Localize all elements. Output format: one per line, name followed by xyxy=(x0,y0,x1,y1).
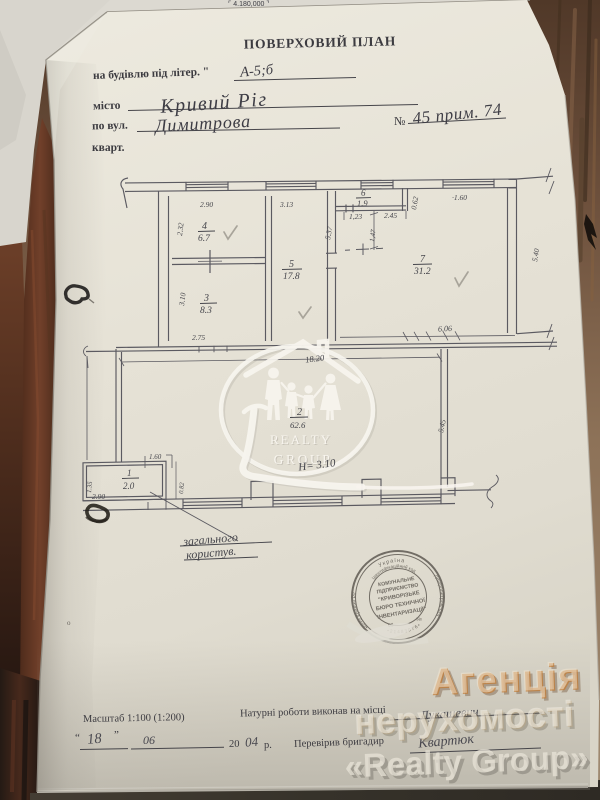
svg-text:6.06: 6.06 xyxy=(438,324,452,334)
svg-text:0.82: 0.82 xyxy=(178,481,186,494)
svg-text:1.9: 1.9 xyxy=(357,198,368,208)
svg-text:04: 04 xyxy=(245,734,260,750)
svg-text:3.10: 3.10 xyxy=(177,292,188,307)
svg-text:31.2: 31.2 xyxy=(413,267,431,277)
svg-text:”: ” xyxy=(114,729,119,741)
svg-text:5: 5 xyxy=(289,259,294,270)
svg-text:3: 3 xyxy=(203,293,209,304)
svg-text:2.45: 2.45 xyxy=(384,211,397,220)
svg-text:1.35: 1.35 xyxy=(86,480,94,493)
svg-text:1.60: 1.60 xyxy=(149,453,162,461)
svg-text:06: 06 xyxy=(143,733,155,747)
svg-text:кварт.: кварт. xyxy=(92,142,125,154)
svg-text:o: o xyxy=(67,619,71,627)
svg-text:нерухомості: нерухомості xyxy=(353,693,574,742)
svg-text:REALTY: REALTY xyxy=(270,432,332,447)
svg-text:4: 4 xyxy=(202,221,207,232)
svg-text:місто: місто xyxy=(93,100,121,113)
svg-text:2.0: 2.0 xyxy=(123,481,135,491)
svg-text:2.75: 2.75 xyxy=(192,333,205,342)
svg-text:8.3: 8.3 xyxy=(200,306,212,316)
svg-text:18: 18 xyxy=(86,731,103,748)
svg-text:3.13: 3.13 xyxy=(279,200,293,209)
svg-text:ПОВЕРХОВИЙ ПЛАН: ПОВЕРХОВИЙ ПЛАН xyxy=(244,33,397,51)
svg-text:17.8: 17.8 xyxy=(283,272,300,282)
svg-text:2.32: 2.32 xyxy=(175,222,186,236)
svg-text:2: 2 xyxy=(297,407,302,418)
svg-text:по вул.: по вул. xyxy=(92,120,128,133)
svg-text:1,23: 1,23 xyxy=(349,212,362,221)
svg-text:Масштаб 1:100 (1:200): Масштаб 1:100 (1:200) xyxy=(83,712,185,725)
svg-text:20: 20 xyxy=(229,739,240,750)
svg-text:“: “ xyxy=(75,732,80,744)
svg-text:6: 6 xyxy=(361,188,366,198)
svg-text:А-5;б: А-5;б xyxy=(238,62,274,81)
svg-text:р.: р. xyxy=(264,740,272,751)
svg-text:№: № xyxy=(394,114,405,128)
svg-text:1: 1 xyxy=(127,468,132,478)
svg-text:·1.60: ·1.60 xyxy=(452,193,467,202)
svg-text:62.6: 62.6 xyxy=(290,420,306,430)
svg-text:6.7: 6.7 xyxy=(198,234,211,244)
svg-text:2.90: 2.90 xyxy=(200,200,213,209)
svg-text:1,47: 1,47 xyxy=(368,229,377,243)
svg-text:2.90: 2.90 xyxy=(92,492,105,501)
